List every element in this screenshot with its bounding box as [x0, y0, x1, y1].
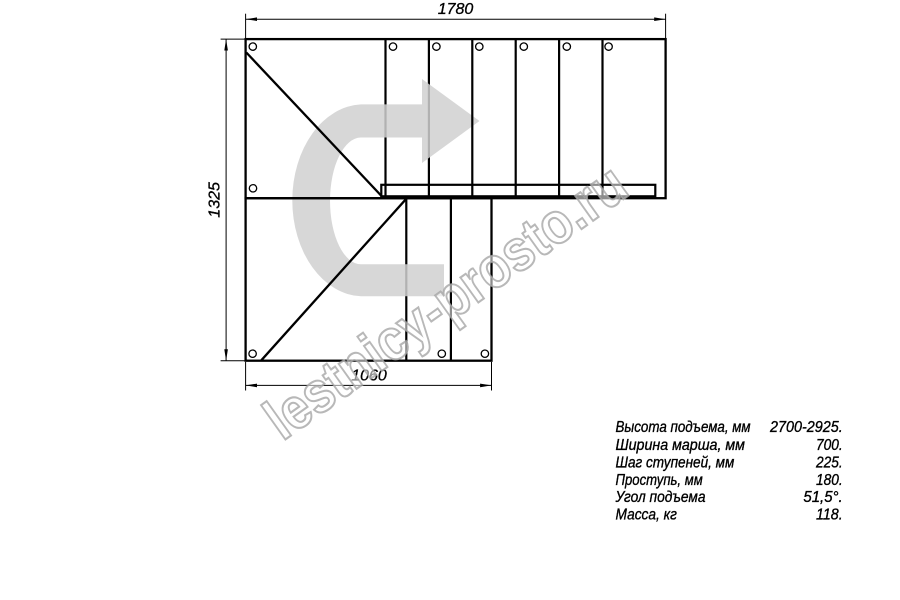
svg-text:51,5°.: 51,5°. — [803, 489, 842, 506]
svg-text:Шаг ступеней, мм: Шаг ступеней, мм — [616, 454, 735, 471]
svg-text:Проступь, мм: Проступь, мм — [616, 472, 704, 489]
svg-text:180.: 180. — [816, 472, 843, 489]
svg-text:Ширина марша, мм: Ширина марша, мм — [616, 437, 746, 454]
svg-text:1780: 1780 — [438, 1, 474, 18]
svg-text:1325: 1325 — [207, 182, 224, 218]
svg-text:Высота подъема, мм: Высота подъема, мм — [616, 419, 751, 436]
svg-text:118.: 118. — [816, 506, 843, 523]
svg-text:225.: 225. — [815, 454, 843, 471]
svg-text:2700-2925.: 2700-2925. — [769, 419, 843, 436]
svg-text:Угол подъема: Угол подъема — [615, 489, 706, 506]
svg-text:700.: 700. — [816, 437, 843, 454]
svg-text:Масса, кг: Масса, кг — [616, 506, 678, 523]
